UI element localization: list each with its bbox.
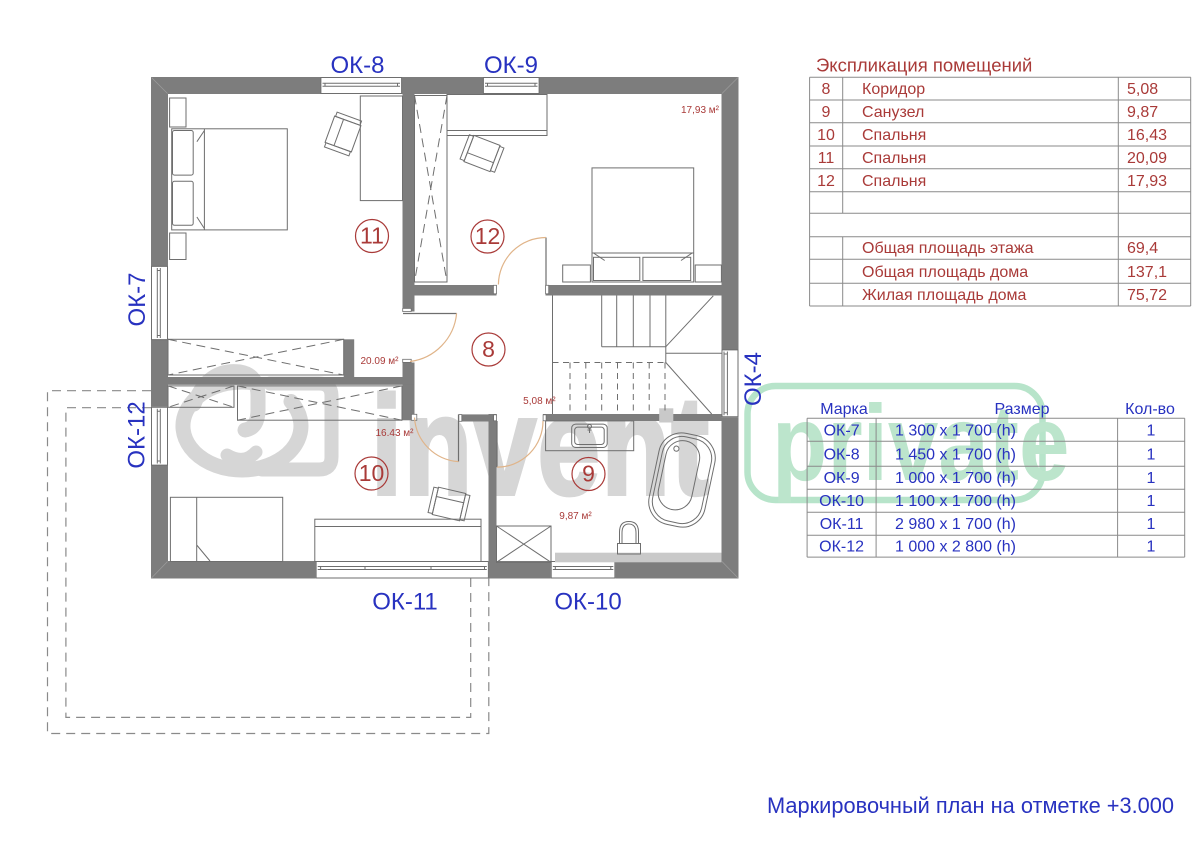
svg-text:Коридор: Коридор [862,81,925,98]
svg-text:1: 1 [1147,516,1156,533]
svg-text:ОК-9: ОК-9 [824,470,860,487]
svg-text:1: 1 [1147,470,1156,487]
svg-text:11: 11 [818,150,835,167]
svg-text:2 980 x 1 700 (h): 2 980 x 1 700 (h) [895,516,1016,533]
svg-text:1: 1 [1147,493,1156,510]
svg-text:1 100 x 1 700 (h): 1 100 x 1 700 (h) [895,493,1016,510]
svg-text:ОК-11: ОК-11 [372,589,438,616]
svg-text:9: 9 [822,104,831,121]
svg-text:1 450 x 1 700 (h): 1 450 x 1 700 (h) [895,446,1016,463]
svg-text:ОК-11: ОК-11 [820,516,864,533]
svg-text:9,87: 9,87 [1127,104,1158,121]
svg-text:1 300 x 1 700 (h): 1 300 x 1 700 (h) [895,422,1016,439]
svg-text:8: 8 [482,336,495,362]
svg-text:ОК-7: ОК-7 [124,273,151,327]
svg-text:Кол-во: Кол-во [1125,401,1175,418]
svg-text:1: 1 [1147,446,1156,463]
svg-text:ОК-4: ОК-4 [740,352,767,406]
svg-text:137,1: 137,1 [1127,264,1167,281]
svg-text:12: 12 [475,223,501,249]
svg-text:Марка: Марка [820,401,868,418]
svg-text:1 000 x 2 800 (h): 1 000 x 2 800 (h) [895,539,1016,556]
svg-text:ОК-10: ОК-10 [819,493,864,510]
svg-text:Общая площадь дома: Общая площадь дома [862,264,1028,281]
svg-text:ОК-9: ОК-9 [484,52,538,79]
svg-text:12: 12 [817,173,835,190]
svg-text:10: 10 [817,127,835,144]
svg-text:1 000 x 1 700 (h): 1 000 x 1 700 (h) [895,470,1016,487]
svg-text:ОК-8: ОК-8 [824,446,860,463]
svg-text:5,08 м²: 5,08 м² [523,396,556,407]
svg-text:Экспликация помещений: Экспликация помещений [816,55,1032,76]
svg-text:Маркировочный план на отметке: Маркировочный план на отметке +3.000 [767,793,1174,818]
svg-text:ОК-10: ОК-10 [554,589,621,616]
svg-text:75,72: 75,72 [1127,287,1167,304]
svg-text:17,93 м²: 17,93 м² [681,105,720,116]
svg-text:Общая площадь этажа: Общая площадь этажа [862,240,1034,257]
svg-text:ОК-12: ОК-12 [124,401,151,468]
svg-text:Санузел: Санузел [862,104,924,121]
svg-text:9,87 м²: 9,87 м² [559,511,592,522]
svg-text:Спальня: Спальня [862,150,926,167]
svg-text:Жилая площадь дома: Жилая площадь дома [862,287,1027,304]
svg-text:ОК-7: ОК-7 [824,422,860,439]
svg-text:5,08: 5,08 [1127,81,1158,98]
svg-text:ОК-12: ОК-12 [819,539,864,556]
svg-text:16.43 м²: 16.43 м² [375,428,414,439]
svg-text:17,93: 17,93 [1127,173,1167,190]
svg-text:20.09 м²: 20.09 м² [360,356,399,367]
svg-text:1: 1 [1147,539,1156,556]
svg-text:69,4: 69,4 [1127,240,1158,257]
svg-text:Спальня: Спальня [862,127,926,144]
svg-text:Размер: Размер [995,401,1050,418]
svg-text:ОК-8: ОК-8 [331,52,385,79]
svg-text:Спальня: Спальня [862,173,926,190]
svg-text:8: 8 [822,81,831,98]
svg-text:16,43: 16,43 [1127,127,1167,144]
svg-text:10: 10 [359,460,385,486]
svg-text:1: 1 [1147,422,1156,439]
svg-text:11: 11 [360,223,384,249]
svg-text:9: 9 [582,461,595,487]
svg-text:20,09: 20,09 [1127,150,1167,167]
